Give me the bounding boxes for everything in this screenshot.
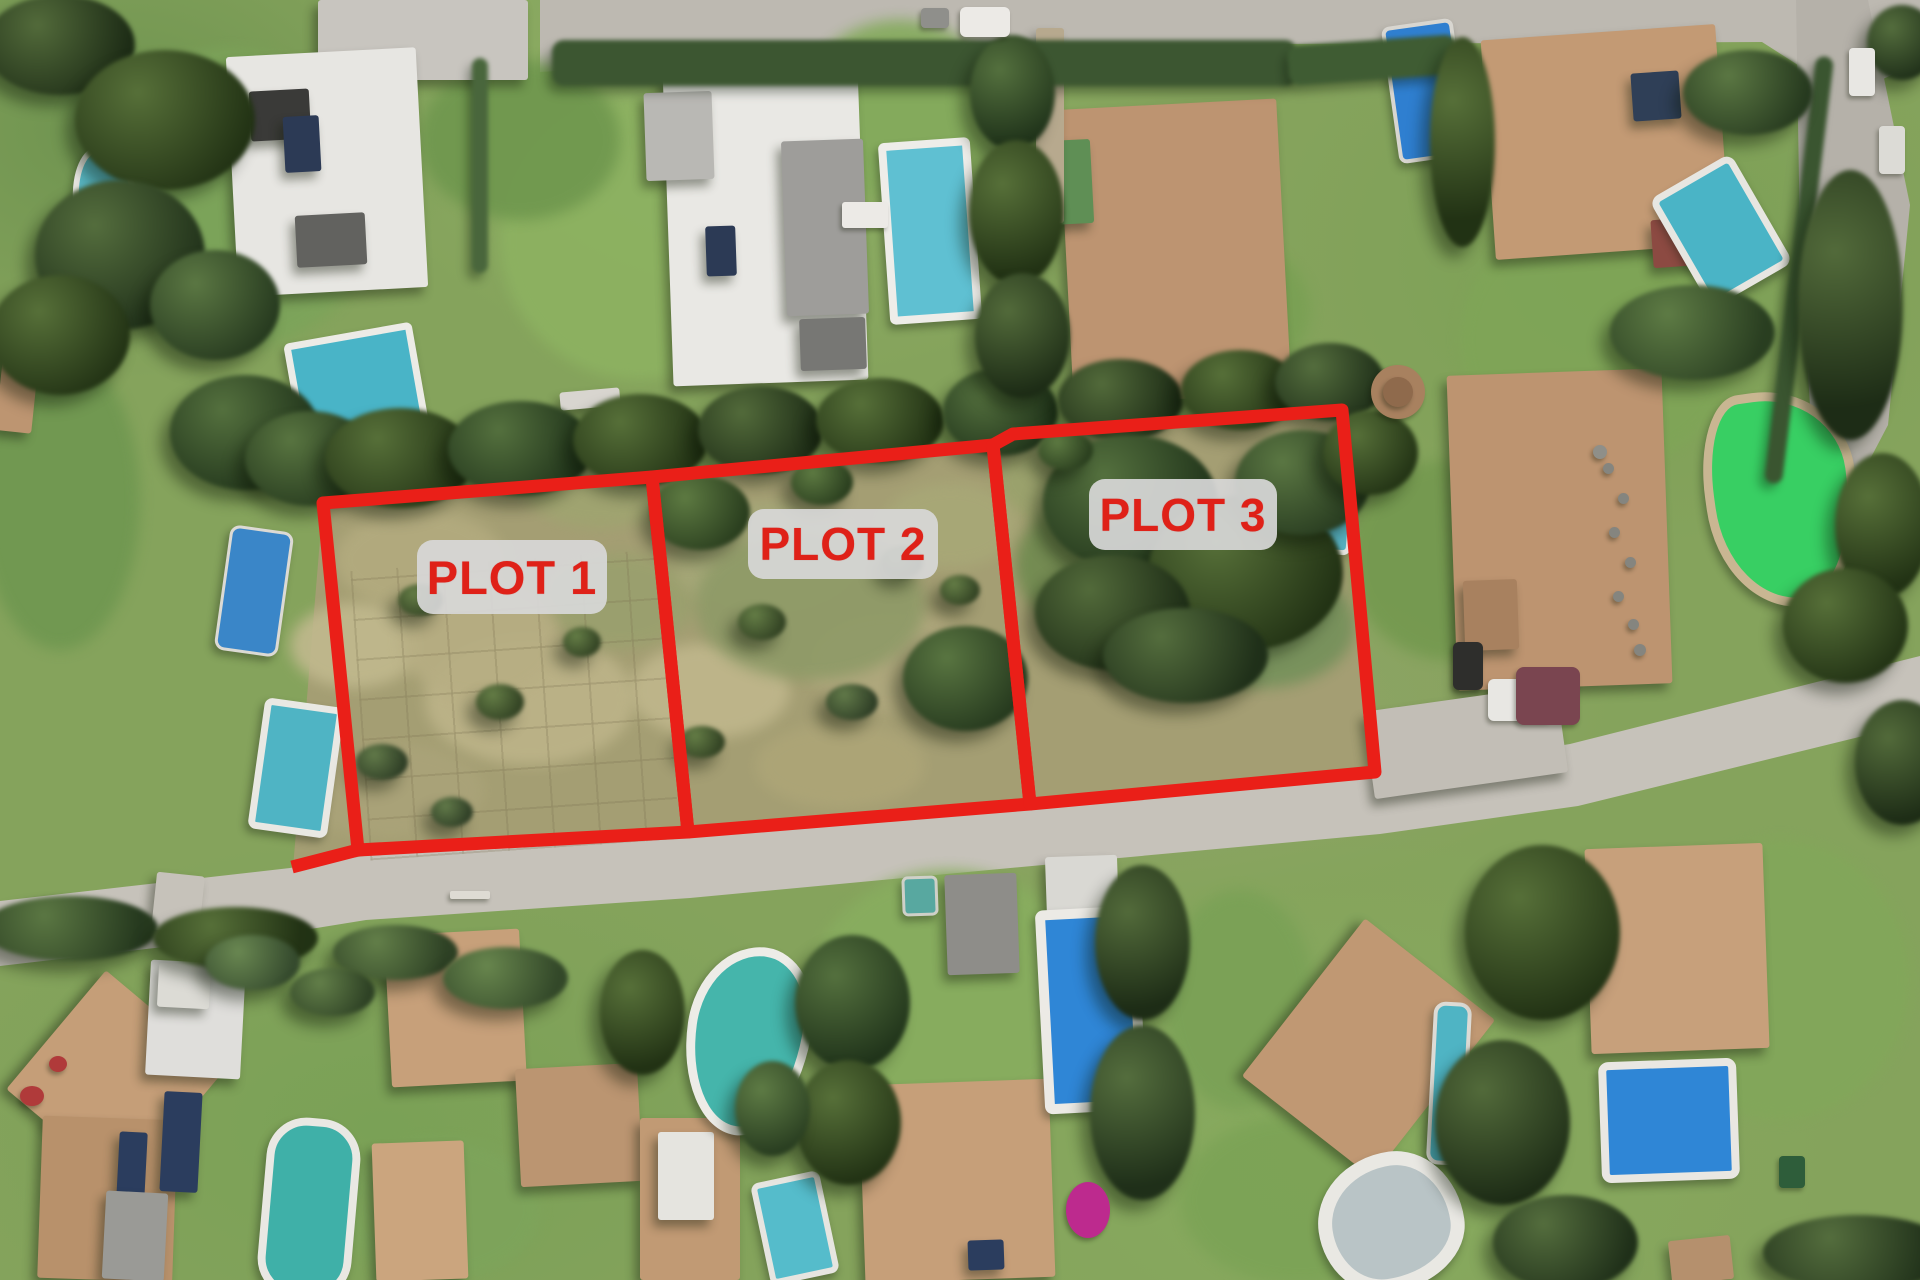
plot-2-label: PLOT 2: [748, 509, 938, 579]
aerial-photo-container: PLOT 1 PLOT 2 PLOT 3: [0, 0, 1920, 1280]
plot-3-label: PLOT 3: [1089, 479, 1277, 550]
plot-labels-layer: PLOT 1 PLOT 2 PLOT 3: [0, 0, 1920, 1280]
plot-1-label: PLOT 1: [417, 540, 607, 614]
